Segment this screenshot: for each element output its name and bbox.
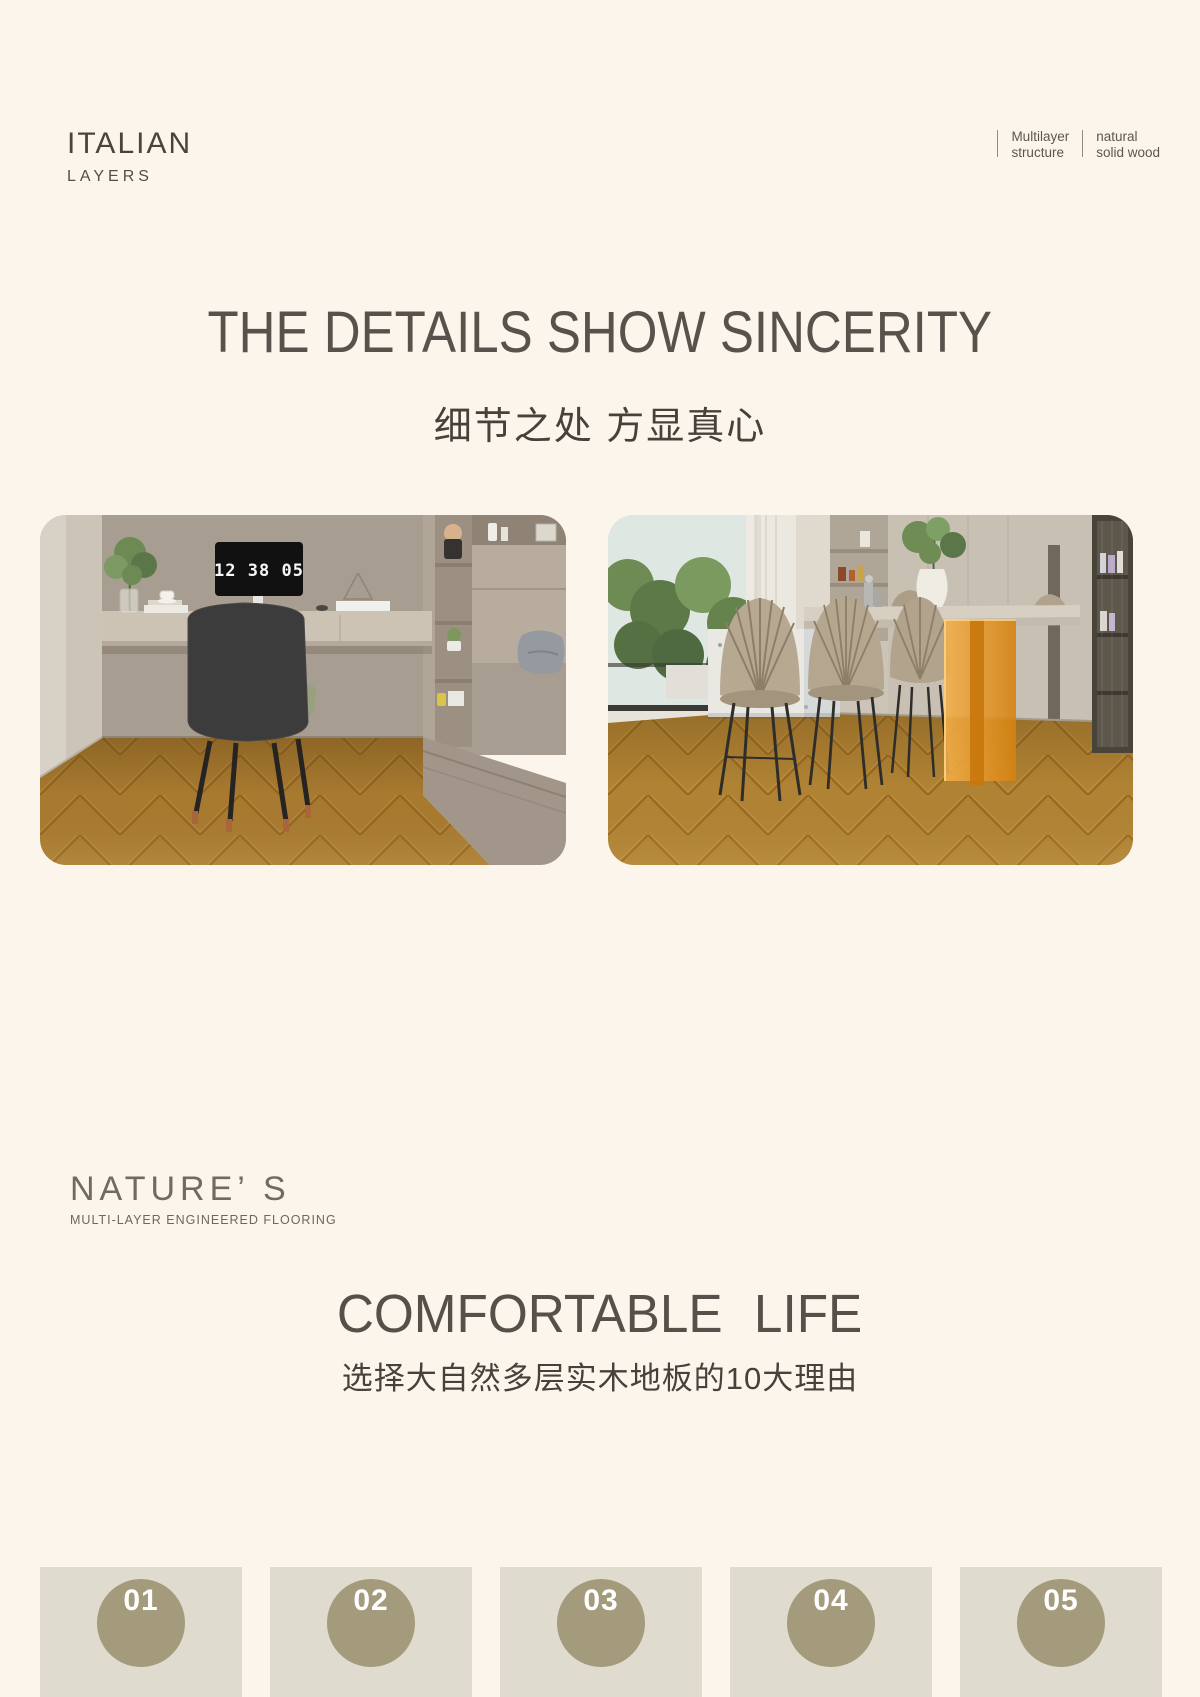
reason-card-02: 02 <box>270 1567 472 1697</box>
photo-study-room: 12 38 05 <box>40 515 566 865</box>
dining-room-scene <box>608 515 1133 865</box>
comfort-heading-zh: 选择大自然多层实木地板的10大理由 <box>0 1353 1200 1398</box>
brand: ITALIAN LAYERS <box>67 127 192 186</box>
comfort-heading-en: COMFORTABLE LIFE <box>0 1283 1200 1345</box>
brand-title: ITALIAN <box>67 127 192 161</box>
reason-cards-row: 01 02 03 04 05 <box>40 1567 1162 1697</box>
succulent <box>447 628 461 642</box>
divider-bar <box>997 130 998 157</box>
acrylic-table-leg <box>944 619 1016 785</box>
number-badge: 03 <box>557 1579 645 1667</box>
divider-bar <box>1082 130 1083 157</box>
natures-brand-subtitle: MULTI-LAYER ENGINEERED FLOORING <box>70 1213 337 1227</box>
study-room-scene: 12 38 05 <box>40 515 566 865</box>
tag-multilayer-structure: Multilayer structure <box>1011 129 1069 161</box>
comfort-heading-en-text: COMFORTABLE LIFE <box>337 1283 862 1345</box>
bookcase <box>1092 515 1133 753</box>
tag-line: structure <box>1011 145 1069 161</box>
badge-number: 03 <box>583 1584 618 1618</box>
tag-line: Multilayer <box>1011 129 1069 145</box>
details-heading-en-text: THE DETAILS SHOW SINCERITY <box>208 299 993 366</box>
number-badge: 04 <box>787 1579 875 1667</box>
number-badge: 01 <box>97 1579 185 1667</box>
photo-dining-room <box>608 515 1133 865</box>
details-heading-en: THE DETAILS SHOW SINCERITY <box>0 299 1200 366</box>
tag-natural-solid-wood: natural solid wood <box>1096 129 1160 161</box>
photo-frame <box>536 524 556 541</box>
brand-subtitle: LAYERS <box>67 168 192 186</box>
reason-card-04: 04 <box>730 1567 932 1697</box>
badge-number: 04 <box>813 1584 848 1618</box>
door-slot <box>1048 545 1060 723</box>
reason-card-01: 01 <box>40 1567 242 1697</box>
details-heading-zh: 细节之处 方显真心 <box>0 395 1200 450</box>
badge-number: 05 <box>1043 1584 1078 1618</box>
header-tags: Multilayer structure natural solid wood <box>997 129 1160 161</box>
white-books <box>336 601 390 611</box>
flip-clock-time: 12 38 05 <box>214 561 304 581</box>
reason-card-05: 05 <box>960 1567 1162 1697</box>
reason-card-03: 03 <box>500 1567 702 1697</box>
mouse <box>316 605 328 611</box>
tag-line: solid wood <box>1096 145 1160 161</box>
natures-brand-title: NATURE’ S <box>70 1170 337 1209</box>
natures-brand: NATURE’ S MULTI-LAYER ENGINEERED FLOORIN… <box>70 1170 337 1227</box>
number-badge: 05 <box>1017 1579 1105 1667</box>
number-badge: 02 <box>327 1579 415 1667</box>
tag-line: natural <box>1096 129 1160 145</box>
coffee-cup <box>160 591 174 599</box>
books <box>144 605 188 613</box>
badge-number: 01 <box>123 1584 158 1618</box>
badge-number: 02 <box>353 1584 388 1618</box>
